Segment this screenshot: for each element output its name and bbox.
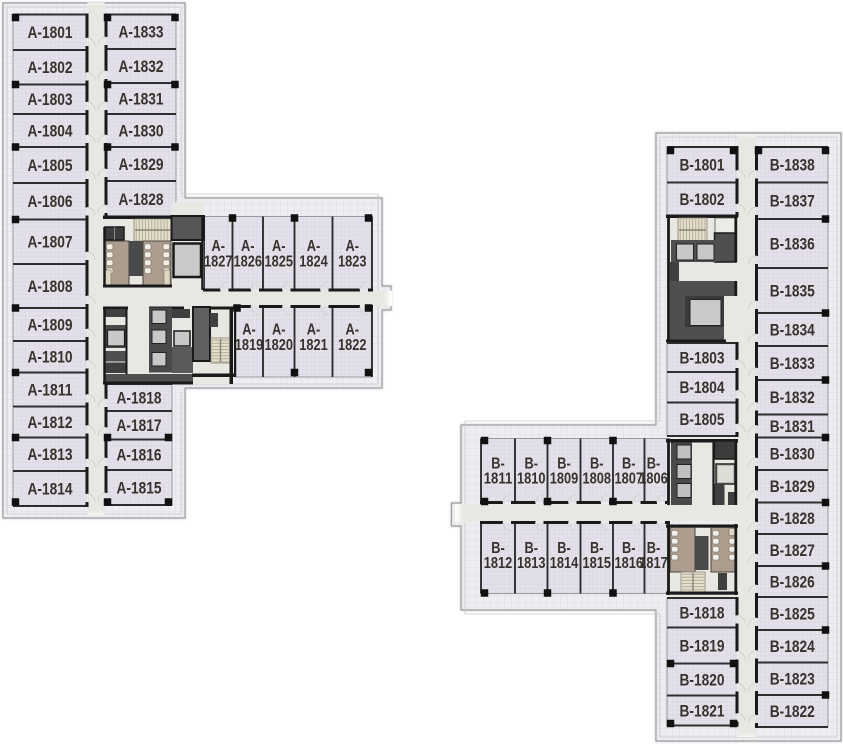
svg-text:1825: 1825	[265, 253, 294, 270]
svg-text:B-1804: B-1804	[680, 378, 725, 397]
svg-text:1810: 1810	[517, 471, 546, 488]
svg-text:B-1827: B-1827	[770, 541, 815, 560]
svg-text:1819: 1819	[235, 337, 264, 354]
svg-text:1813: 1813	[517, 555, 546, 572]
svg-text:B-1826: B-1826	[770, 572, 815, 591]
svg-text:1806: 1806	[639, 471, 668, 488]
svg-text:A-1807: A-1807	[28, 233, 73, 252]
svg-text:B-1819: B-1819	[680, 636, 725, 655]
svg-text:A-1813: A-1813	[28, 445, 73, 464]
svg-text:1826: 1826	[234, 253, 263, 270]
svg-text:B-1838: B-1838	[770, 156, 815, 175]
svg-text:1824: 1824	[299, 253, 328, 270]
svg-text:A-1830: A-1830	[119, 121, 164, 140]
svg-text:B-1825: B-1825	[770, 604, 815, 623]
svg-text:A-1831: A-1831	[119, 89, 164, 108]
svg-text:1808: 1808	[583, 471, 612, 488]
svg-text:B-1802: B-1802	[680, 190, 725, 209]
svg-text:1820: 1820	[265, 337, 294, 354]
svg-text:A-1815: A-1815	[117, 478, 162, 497]
svg-text:1827: 1827	[204, 253, 233, 270]
svg-text:1809: 1809	[550, 471, 579, 488]
svg-text:B-1837: B-1837	[770, 192, 815, 211]
svg-text:B-1803: B-1803	[680, 348, 725, 367]
svg-text:B-1830: B-1830	[770, 445, 815, 464]
svg-text:A-1802: A-1802	[28, 58, 73, 77]
svg-text:A-1810: A-1810	[28, 348, 73, 367]
svg-text:B-1823: B-1823	[770, 670, 815, 689]
svg-text:A-1808: A-1808	[28, 277, 73, 296]
svg-text:B-1805: B-1805	[680, 410, 725, 429]
svg-text:B-1828: B-1828	[770, 509, 815, 528]
svg-text:1823: 1823	[338, 253, 367, 270]
svg-text:B-1818: B-1818	[680, 604, 725, 623]
svg-text:B-1836: B-1836	[770, 234, 815, 253]
svg-text:A-1816: A-1816	[117, 446, 162, 465]
svg-text:1812: 1812	[484, 555, 513, 572]
svg-text:B-1829: B-1829	[770, 477, 815, 496]
svg-text:B-1821: B-1821	[680, 701, 725, 720]
svg-text:1811: 1811	[484, 471, 513, 488]
svg-text:1814: 1814	[550, 555, 579, 572]
svg-text:A-1806: A-1806	[28, 192, 73, 211]
svg-text:B-1820: B-1820	[680, 670, 725, 689]
svg-text:A-1804: A-1804	[28, 121, 73, 140]
svg-text:1821: 1821	[299, 337, 328, 354]
svg-text:B-1801: B-1801	[680, 156, 725, 175]
svg-text:A-1809: A-1809	[28, 315, 73, 334]
svg-text:B-1832: B-1832	[770, 388, 815, 407]
svg-text:B-1835: B-1835	[770, 281, 815, 300]
svg-text:B-1824: B-1824	[770, 637, 815, 656]
svg-text:A-1805: A-1805	[28, 156, 73, 175]
svg-text:A-1814: A-1814	[28, 479, 73, 498]
svg-text:A-1832: A-1832	[119, 57, 164, 76]
svg-text:A-1801: A-1801	[28, 23, 73, 42]
svg-text:B-1834: B-1834	[770, 320, 815, 339]
svg-text:A-1817: A-1817	[117, 416, 162, 435]
svg-text:A-1833: A-1833	[119, 23, 164, 42]
svg-text:B-1831: B-1831	[770, 417, 815, 436]
svg-text:A-1818: A-1818	[117, 388, 162, 407]
svg-text:B-1822: B-1822	[770, 702, 815, 721]
svg-text:A-1803: A-1803	[28, 90, 73, 109]
svg-text:A-1829: A-1829	[119, 155, 164, 174]
svg-text:B-1833: B-1833	[770, 354, 815, 373]
svg-text:1815: 1815	[583, 555, 612, 572]
svg-text:A-1812: A-1812	[28, 413, 73, 432]
svg-text:1822: 1822	[338, 337, 367, 354]
svg-text:1817: 1817	[639, 555, 668, 572]
svg-text:A-1811: A-1811	[28, 380, 73, 399]
svg-text:A-1828: A-1828	[119, 190, 164, 209]
